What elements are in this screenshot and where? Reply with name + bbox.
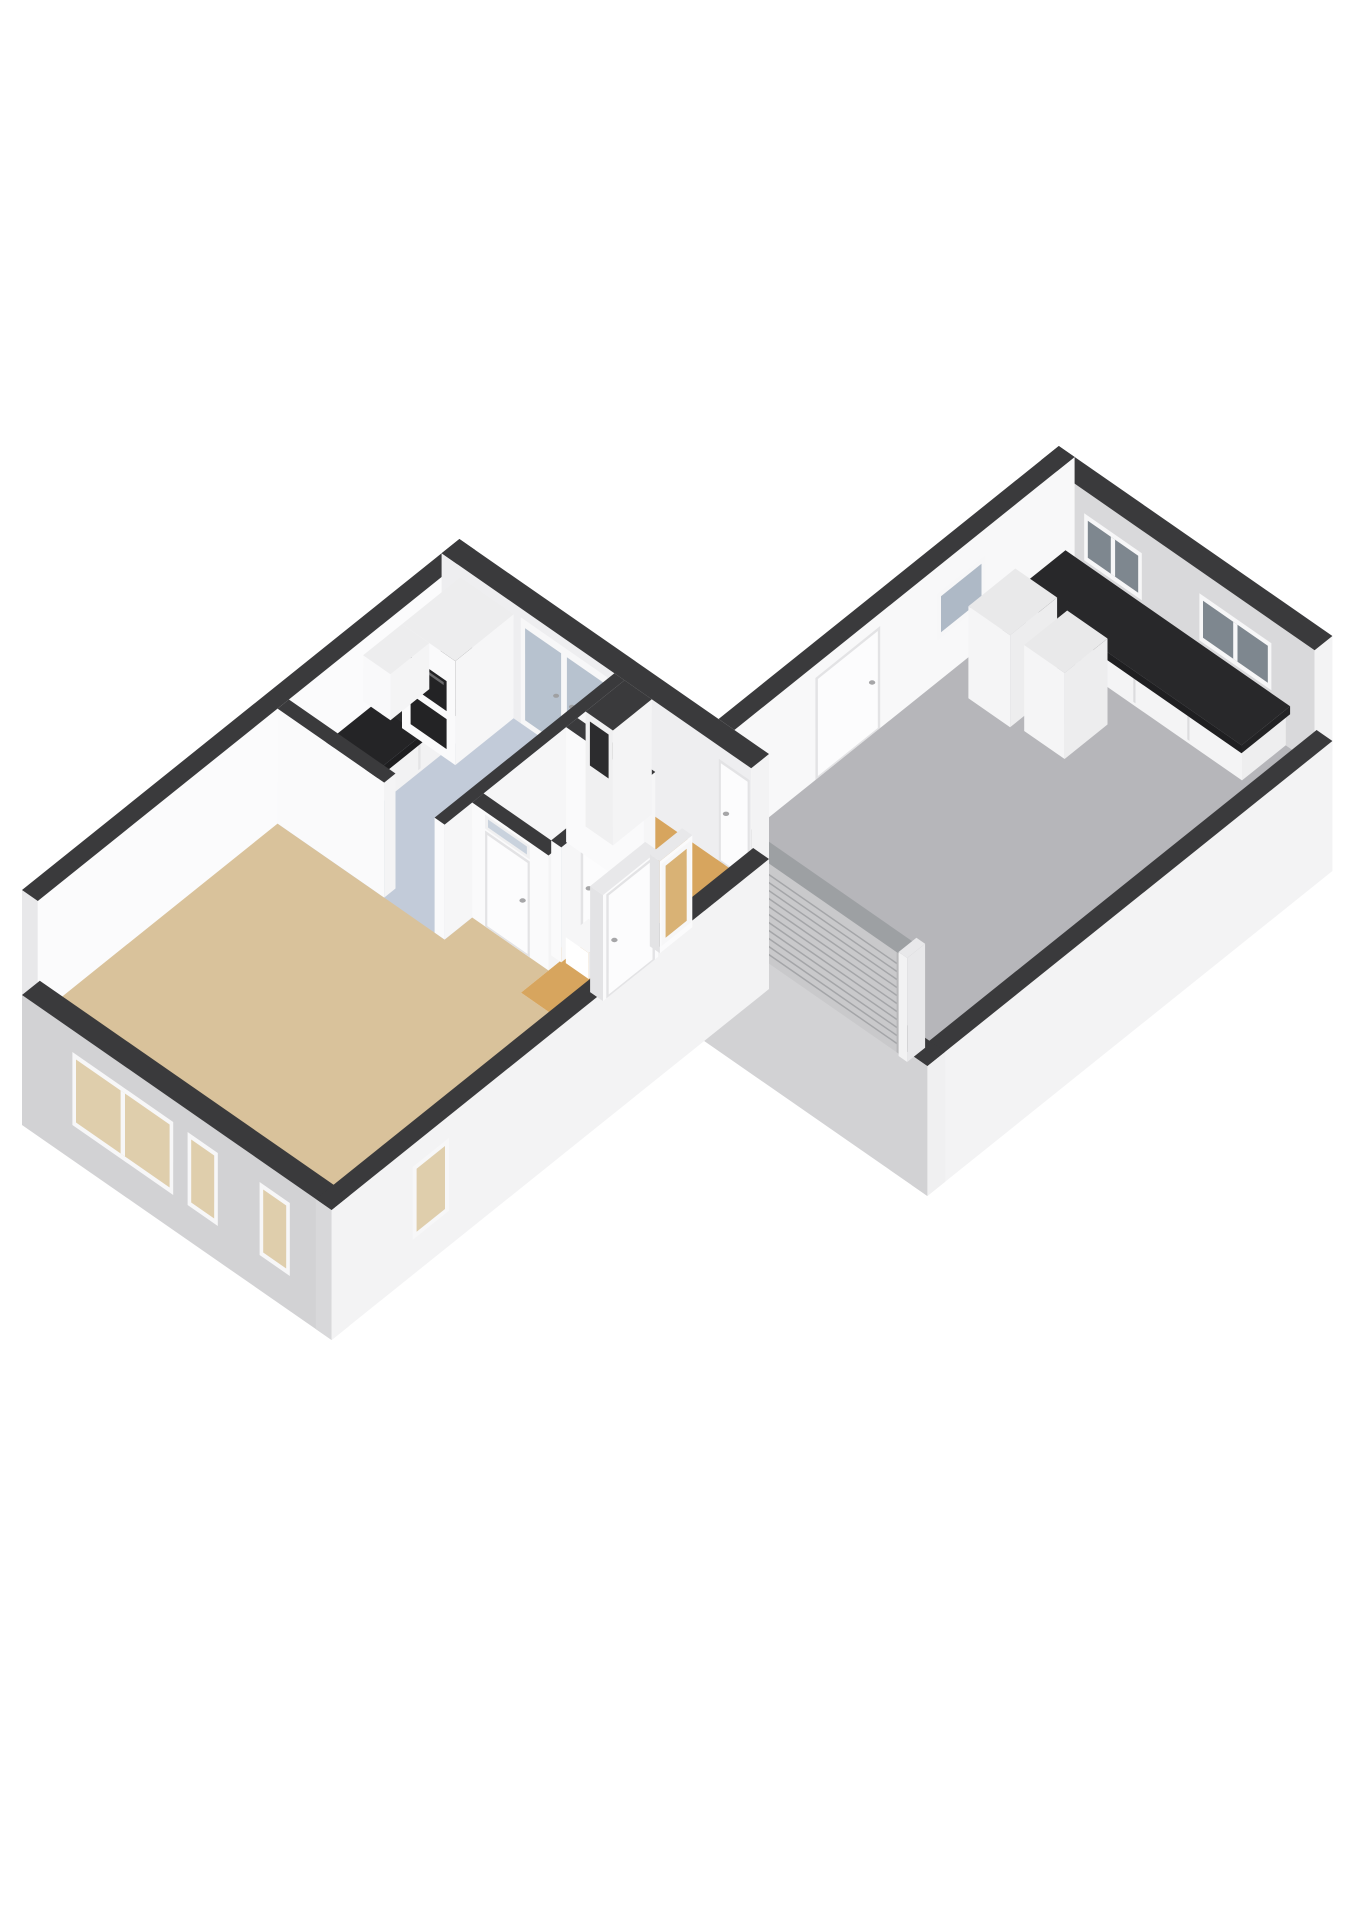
garage-window-ne-1-mullion-0 [1111,537,1115,577]
front-door-handle [611,938,617,942]
toilet-wall-se-front [551,840,561,962]
kitchen-garden-door-handle-left [553,694,559,698]
garage-window-ne-2-mullion-0 [1233,622,1237,662]
front-sidelight-slab-front [650,854,660,953]
roller-door-rail-right-side [907,944,925,1062]
house-se-wall-front [316,1199,332,1340]
roller-door-rail-right-front [899,952,908,1062]
partition-living-kitchen-side [384,774,395,898]
floor-plan-3d-render [0,0,1358,1920]
garage-side-door-handle [869,680,875,684]
hall-door-handle [519,898,525,902]
hall-back-door-handle [723,812,729,816]
garage-sw-wall-side [927,1052,945,1196]
front-door-slab-front [590,886,603,1001]
living-window-large-mullion-0 [121,1091,125,1157]
partition-kitchen-hall-front [435,818,445,940]
floor-plan-page [0,0,1358,1920]
